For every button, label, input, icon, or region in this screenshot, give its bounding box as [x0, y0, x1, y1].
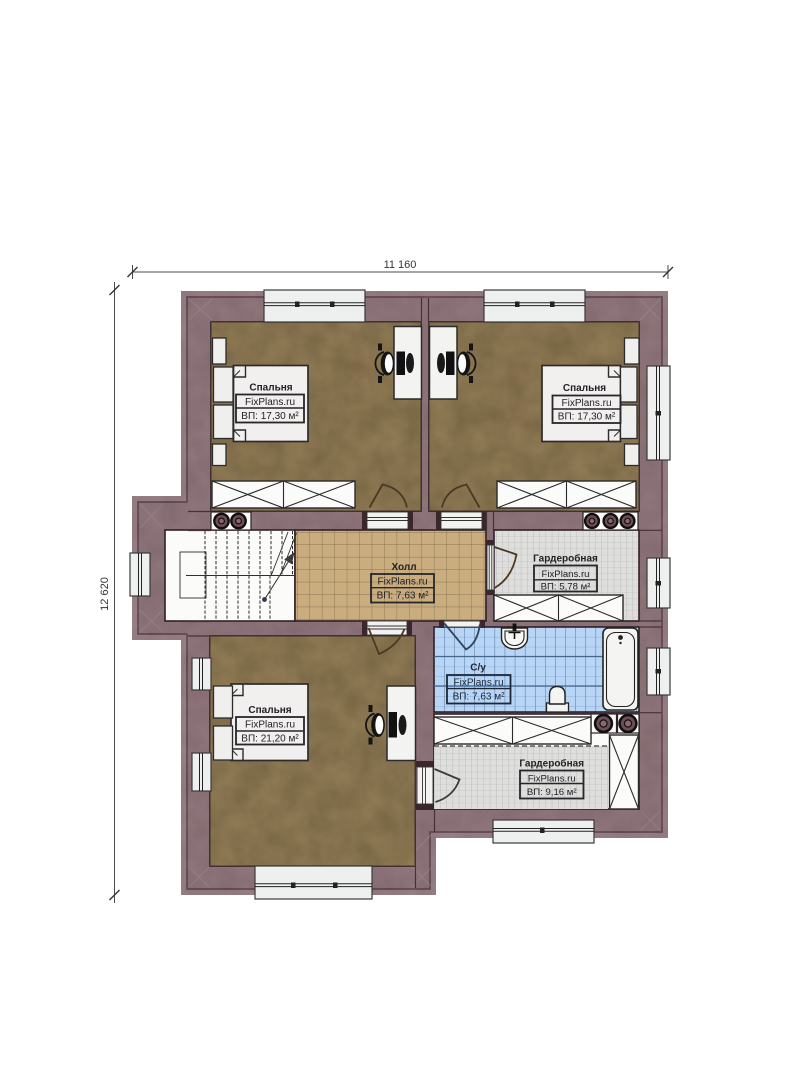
svg-text:ВП: 7,63 м²: ВП: 7,63 м² — [453, 692, 506, 703]
svg-text:ВП: 9,16 м²: ВП: 9,16 м² — [527, 787, 578, 798]
svg-text:FixPlans.ru: FixPlans.ru — [561, 398, 611, 409]
svg-text:Спальня: Спальня — [563, 383, 606, 394]
svg-text:ВП: 5,78 м²: ВП: 5,78 м² — [541, 582, 592, 593]
svg-text:Гардеробная: Гардеробная — [533, 553, 598, 565]
svg-text:12 620: 12 620 — [99, 577, 111, 611]
svg-text:ВП: 17,30 м²: ВП: 17,30 м² — [241, 411, 299, 422]
svg-text:FixPlans.ru: FixPlans.ru — [453, 678, 503, 689]
svg-text:FixPlans.ru: FixPlans.ru — [245, 397, 295, 408]
svg-text:Спальня: Спальня — [249, 383, 292, 394]
svg-text:FixPlans.ru: FixPlans.ru — [377, 577, 427, 588]
svg-text:ВП: 17,30 м²: ВП: 17,30 м² — [558, 412, 616, 423]
svg-text:ВП: 21,20 м²: ВП: 21,20 м² — [241, 733, 299, 744]
svg-text:11 160: 11 160 — [384, 259, 417, 271]
svg-text:ВП: 7,63 м²: ВП: 7,63 м² — [377, 591, 430, 602]
svg-text:FixPlans.ru: FixPlans.ru — [542, 569, 590, 580]
svg-text:FixPlans.ru: FixPlans.ru — [528, 774, 576, 785]
svg-text:С/у: С/у — [470, 663, 486, 674]
svg-text:Спальня: Спальня — [248, 705, 291, 716]
svg-text:Гардеробная: Гардеробная — [519, 758, 584, 770]
svg-text:Холл: Холл — [391, 562, 416, 573]
svg-text:FixPlans.ru: FixPlans.ru — [245, 720, 295, 731]
